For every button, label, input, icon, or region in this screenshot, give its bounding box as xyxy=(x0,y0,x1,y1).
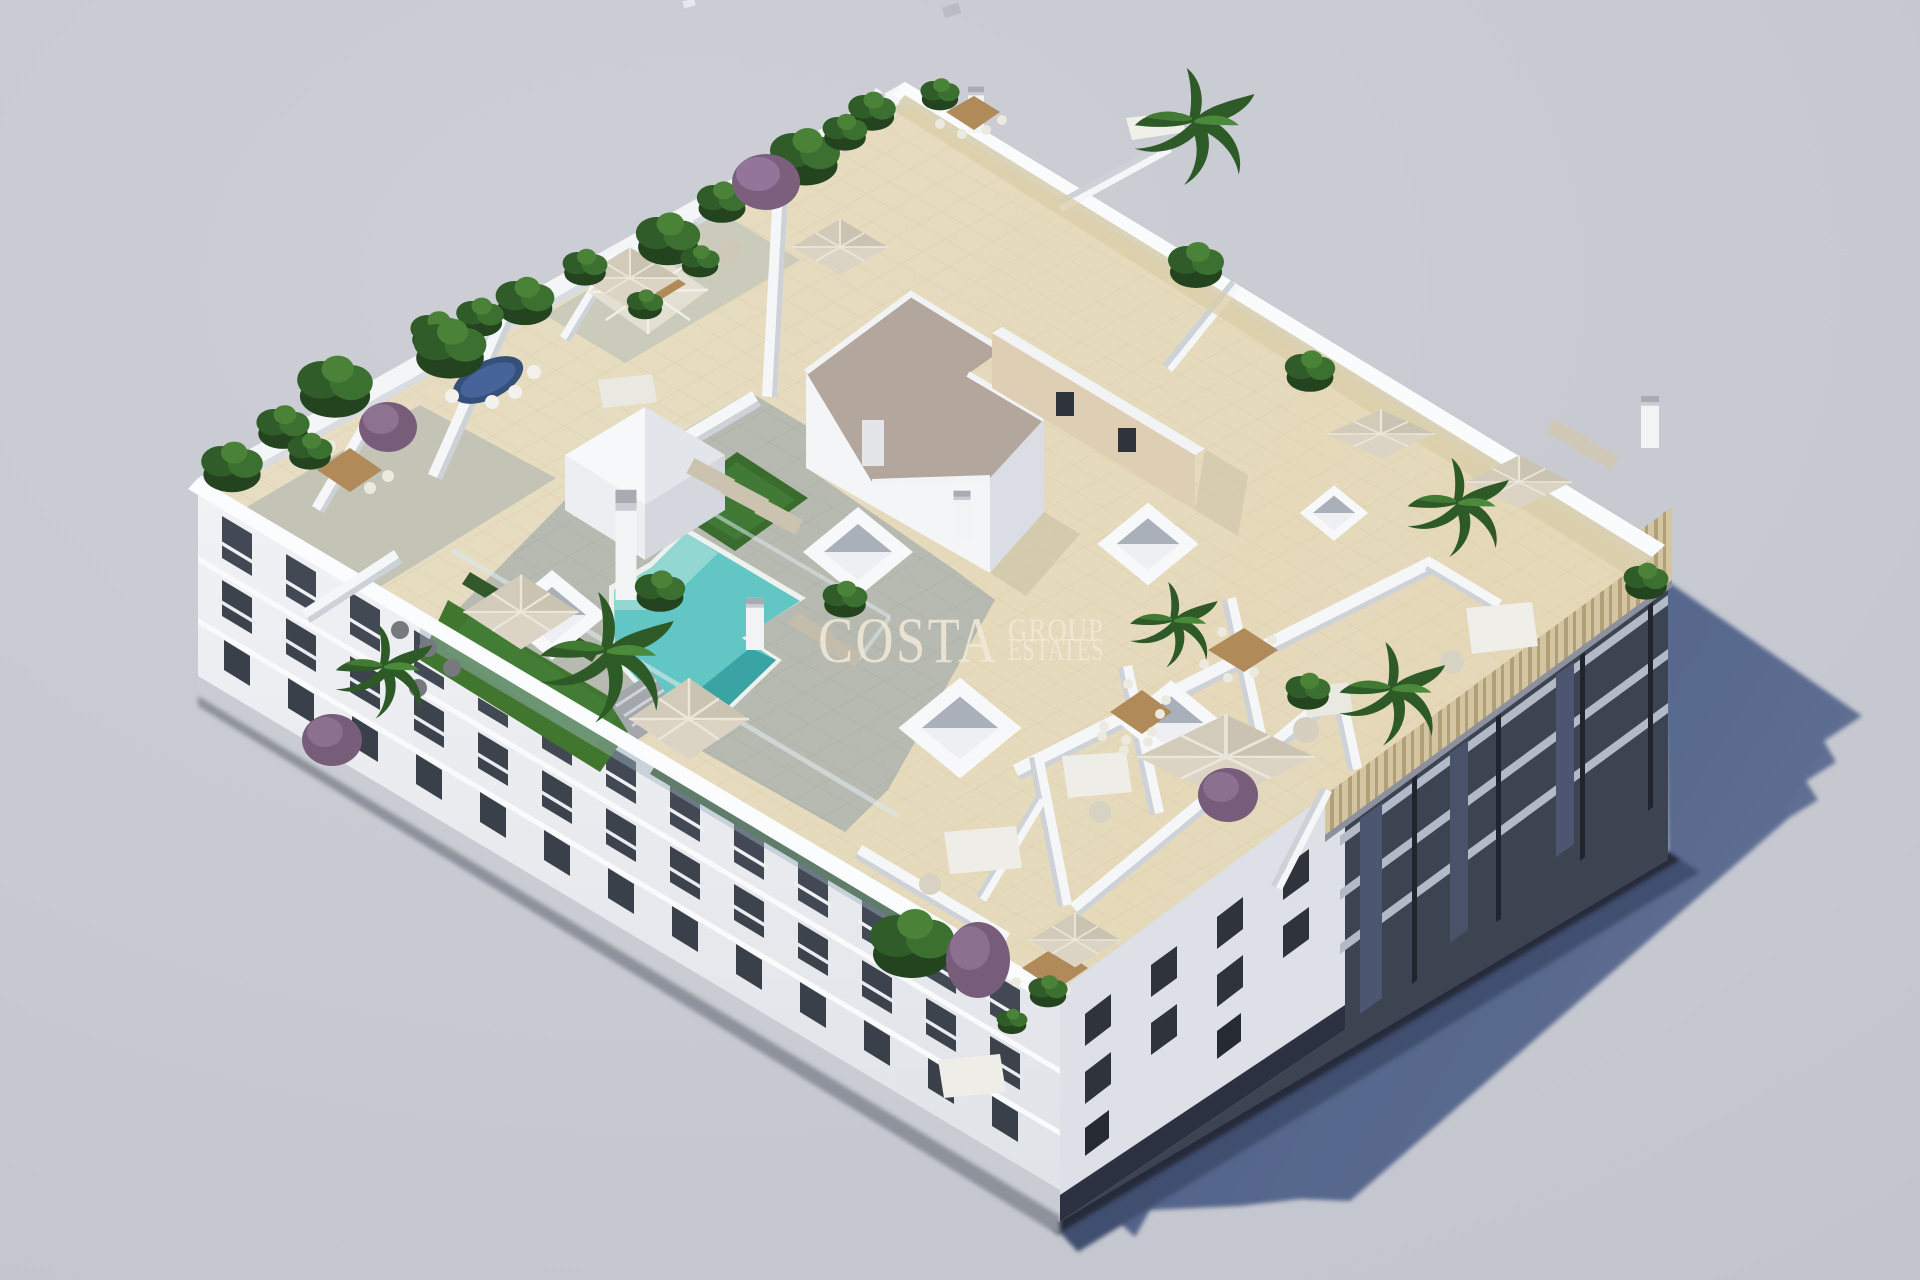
svg-text:COSTA: COSTA xyxy=(818,604,998,677)
svg-text:ESTATES: ESTATES xyxy=(1008,631,1104,667)
